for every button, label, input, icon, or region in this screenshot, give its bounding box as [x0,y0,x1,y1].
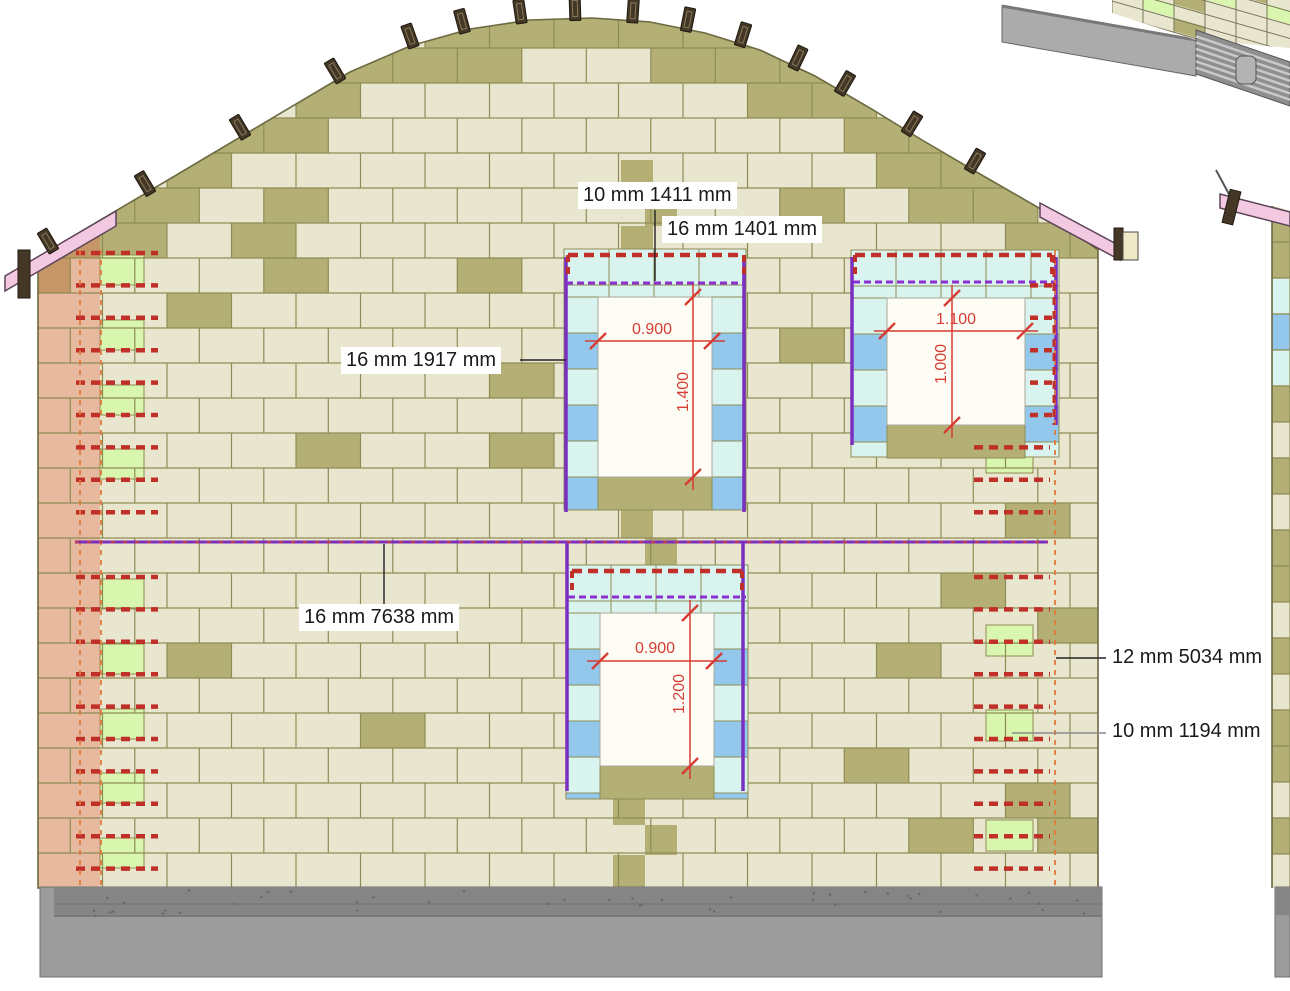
roof-batten [788,45,808,71]
roof-batten [324,58,346,84]
roof-batten [627,0,640,23]
foundation [40,887,1102,977]
callout-rebar-16mm-1401mm: 16 mm 1401 mm [662,216,822,243]
roof-batten [454,8,471,34]
dimension-width-window-3: 0.900 [635,640,675,658]
roof-batten [134,170,156,196]
window-opening [600,613,714,766]
roof-batten [513,0,527,24]
elevation-view: 10 mm 1411 mm 16 mm 1401 mm 16 mm 1917 m… [0,0,1290,991]
callout-rebar-16mm-1917mm: 16 mm 1917 mm [341,347,501,374]
callout-rebar-16mm-7638mm: 16 mm 7638 mm [299,604,459,631]
isometric-floor-fragment [1002,0,1290,113]
dimension-height-window-3: 1.200 [671,674,689,714]
reinforcement-zone-overlay [38,228,100,888]
callout-rebar-12mm-5034mm: 12 mm 5034 mm [1107,644,1267,671]
roof-batten [734,22,752,48]
window-lower-center [566,543,748,799]
adjacent-wall-fragment [1216,170,1290,977]
support-post [1236,56,1256,84]
roof-batten [834,70,856,96]
callout-rebar-10mm-1411mm: 10 mm 1411 mm [578,182,737,209]
fascia-end-batten-left [18,250,30,298]
elevation-drawing [0,0,1290,991]
roof-batten [569,0,581,21]
dimension-width-window-2: 1.100 [936,311,976,329]
roof-batten [964,148,986,174]
dimension-height-window-2: 1.000 [933,344,951,384]
roof-batten [680,7,695,33]
roof-pole [1216,170,1230,196]
roof-batten [901,111,923,137]
roof-batten [401,23,419,49]
window-upper-left [564,249,746,512]
dimension-width-window-1: 0.900 [632,321,672,339]
roof-batten [37,228,59,254]
window-upper-right [851,250,1059,458]
roof-batten [229,114,251,140]
dimension-height-window-1: 1.400 [675,372,693,412]
callout-rebar-10mm-1194mm: 10 mm 1194 mm [1107,718,1266,745]
